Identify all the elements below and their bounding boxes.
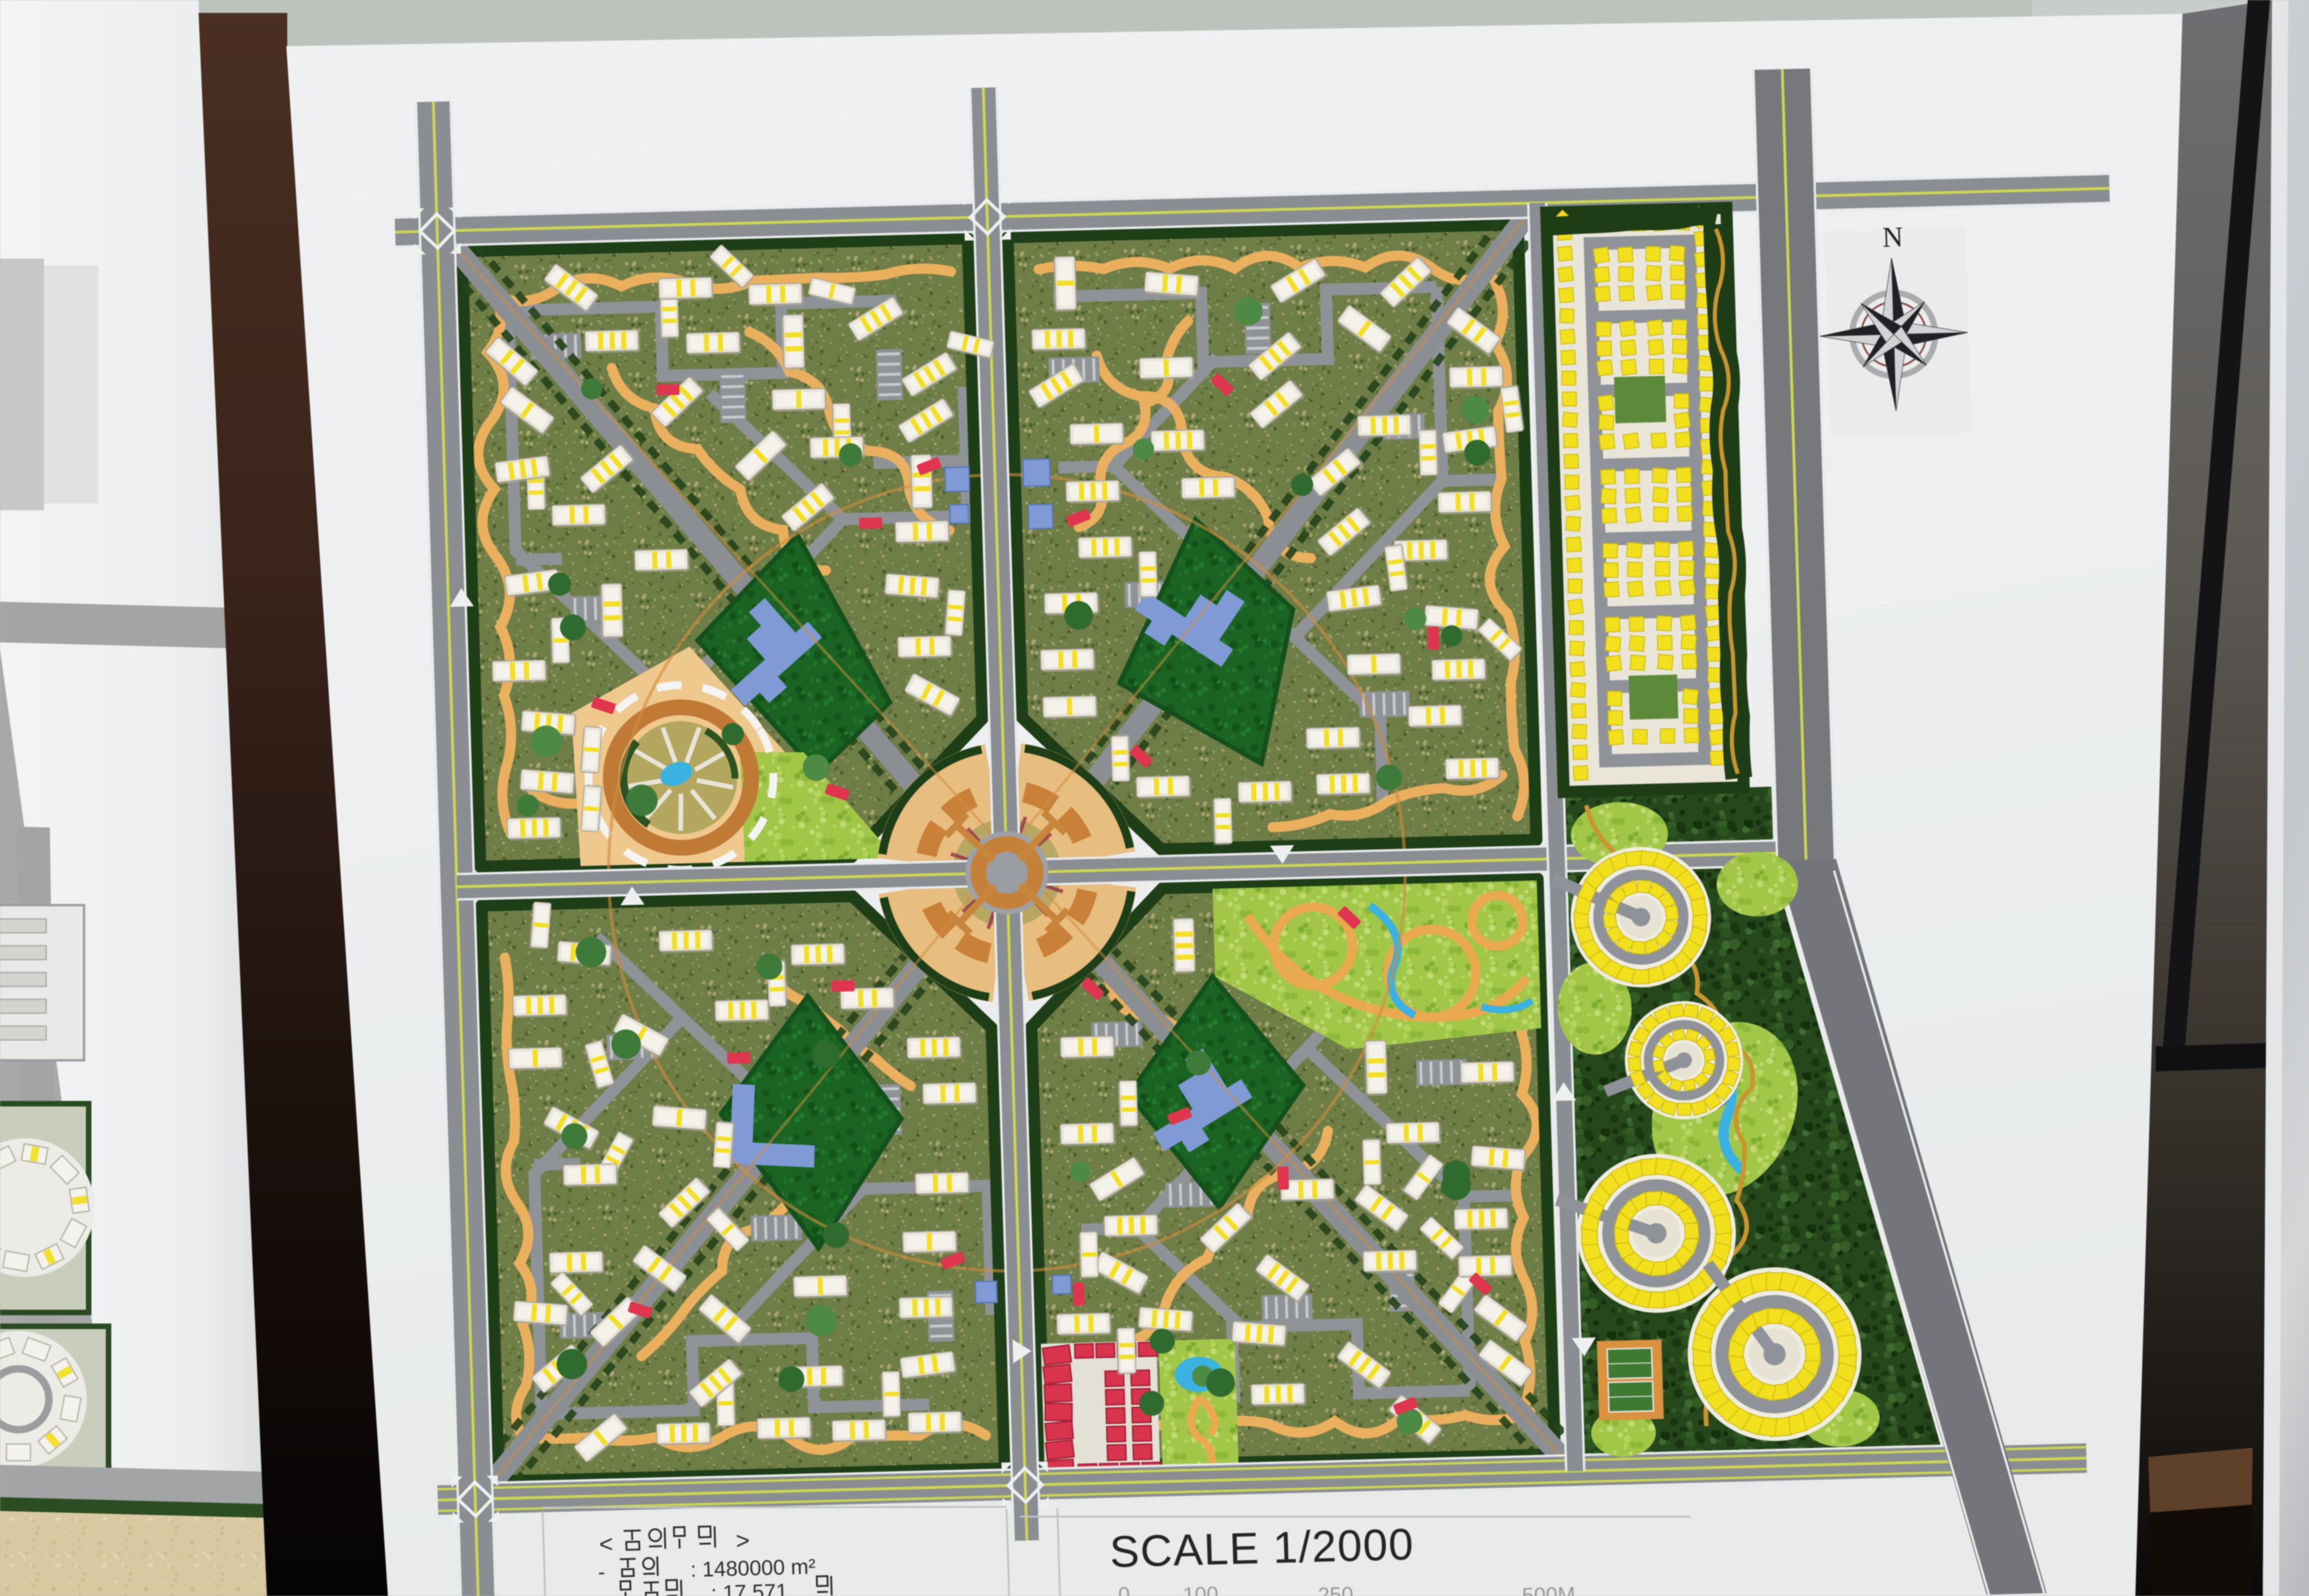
svg-text:0: 0 — [1118, 1582, 1130, 1596]
svg-text:: 1480000 m²: : 1480000 m² — [690, 1554, 816, 1582]
svg-text:500M: 500M — [1522, 1582, 1576, 1596]
svg-text:<: < — [598, 1531, 613, 1558]
svg-text:: 17,571: : 17,571 — [711, 1579, 788, 1596]
svg-text:-: - — [598, 1560, 605, 1584]
svg-text:N: N — [1882, 221, 1904, 253]
svg-text:250: 250 — [1318, 1582, 1354, 1596]
svg-text:100: 100 — [1183, 1582, 1219, 1596]
svg-text:-: - — [598, 1584, 606, 1596]
svg-text:>: > — [735, 1527, 750, 1554]
svg-text:SCALE 1/2000: SCALE 1/2000 — [1109, 1520, 1414, 1577]
